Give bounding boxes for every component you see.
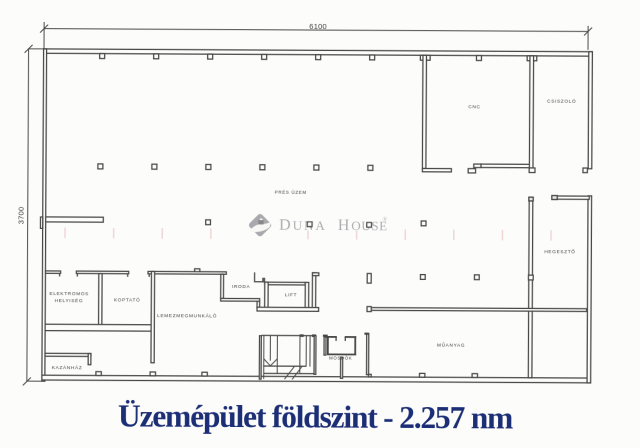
svg-text:HELYISÉG: HELYISÉG [55, 297, 84, 304]
svg-text:Üzemépület földszint - 2.257 n: Üzemépület földszint - 2.257 nm [118, 398, 513, 435]
svg-text:KOPTATÓ: KOPTATÓ [114, 296, 141, 303]
svg-text:IRODA: IRODA [232, 284, 251, 290]
svg-text:3700: 3700 [17, 207, 26, 225]
svg-text:LEMEZMEGMUNKÁLÓ: LEMEZMEGMUNKÁLÓ [157, 312, 217, 319]
svg-text:®: ® [383, 216, 388, 223]
svg-text:HEGESZTŐ: HEGESZTŐ [544, 248, 575, 255]
svg-text:LIFT: LIFT [285, 292, 297, 298]
svg-text:6100: 6100 [309, 22, 327, 31]
svg-text:ELEKTROMOS: ELEKTROMOS [49, 291, 89, 297]
svg-text:CSISZOLÓ: CSISZOLÓ [547, 97, 576, 104]
svg-text:KAZÁNHÁZ: KAZÁNHÁZ [52, 364, 83, 371]
svg-text:PRÉS ÜZEM: PRÉS ÜZEM [275, 189, 307, 195]
svg-text:CNC: CNC [468, 104, 480, 110]
svg-text:MŰANYAG: MŰANYAG [437, 341, 465, 348]
svg-text:MOSDÓK: MOSDÓK [329, 356, 352, 361]
